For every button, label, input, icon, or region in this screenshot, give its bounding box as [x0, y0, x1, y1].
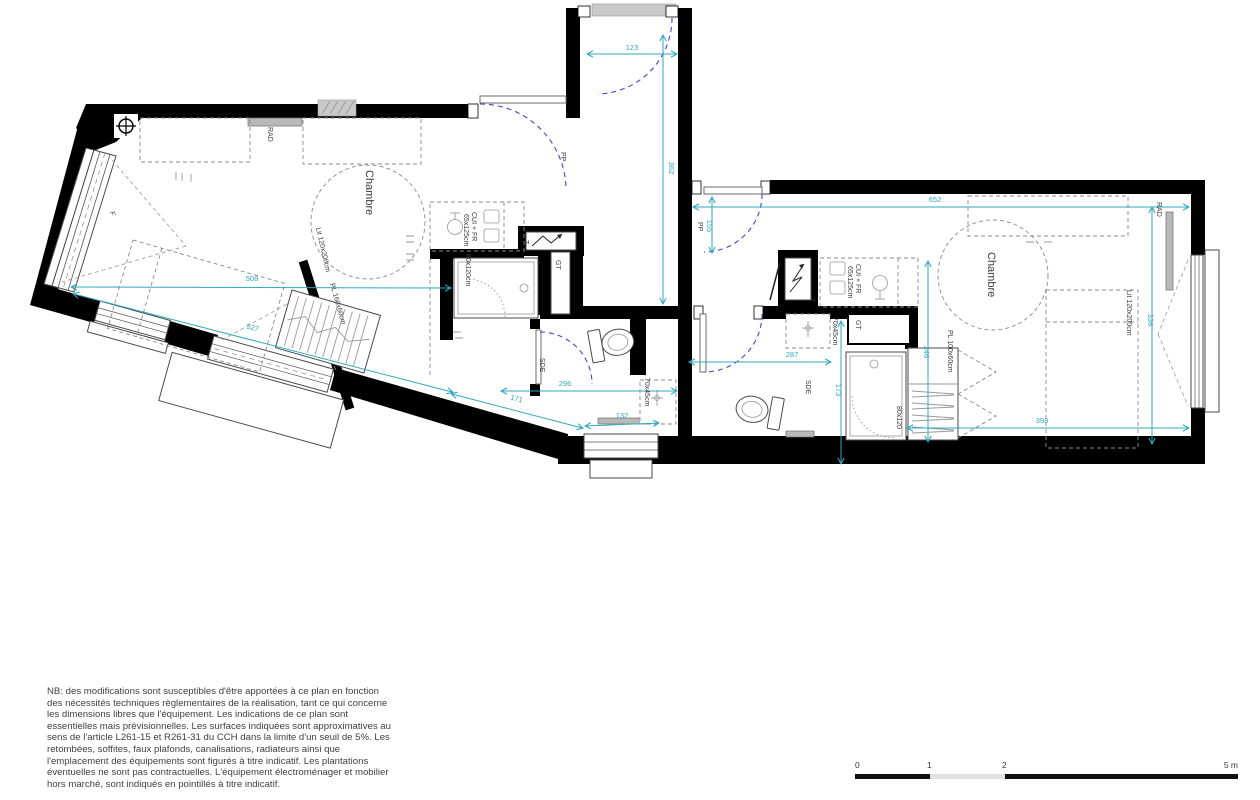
closet-label-right: PL 100x60cm	[946, 330, 953, 373]
landing-threshold	[592, 4, 676, 16]
note-line: éventuelles ne sont pas contractuelles. …	[47, 767, 392, 779]
floor-plan-page: 123 362 508 527 171 132 296 652 155 287 …	[0, 0, 1260, 800]
electrical-panel-right	[770, 258, 811, 300]
dim-bed-wall-right: 398	[1036, 416, 1049, 425]
desk-left-1	[140, 118, 250, 162]
dim-closet-side-right: 246	[922, 346, 931, 359]
dim-sde-depth-right: 173	[834, 384, 843, 397]
grab-bar-right	[786, 431, 814, 437]
dim-entry-width-left: 123	[626, 43, 639, 52]
basin-label-left: 70x45cm	[643, 378, 650, 407]
radiator-label-left: RAD	[266, 127, 273, 142]
radiator-label-right: RAD	[1155, 202, 1162, 217]
scale-bar-segments	[855, 774, 1238, 779]
scale-tick-5m: 5 m	[1224, 760, 1238, 770]
dim-room-depth-right: 336	[1146, 314, 1155, 327]
right-sde-door-arc	[704, 314, 762, 372]
note-line: sens de l'article L261-15 et R261-31 du …	[47, 732, 392, 744]
dim-room-width-left: 508	[246, 274, 259, 283]
note-line: retombées, soffites, faux plafonds, cana…	[47, 744, 392, 756]
dim-mid-wall-left: 171	[509, 393, 523, 405]
room-label-left: Chambre	[363, 170, 375, 215]
scale-bar-ticks: 0 1 2 5 m	[855, 760, 1238, 772]
note-line: essentielles mais prévisionnelles. Les s…	[47, 721, 392, 733]
disclaimer-note: NB: des modifications sont susceptibles …	[47, 686, 392, 790]
bed-label-left: Lit 120x200cm	[314, 227, 331, 273]
radiator-right	[1166, 212, 1173, 290]
dim-entry-depth-left: 362	[667, 162, 676, 175]
scale-tick-0: 0	[855, 760, 860, 770]
dim-lower-wall-left: 527	[245, 322, 259, 334]
dim-sde-width-left: 296	[559, 379, 572, 388]
bed-label-right: Lit 120x200cm	[1125, 290, 1132, 336]
panel-label-right: T	[808, 298, 815, 303]
dim-sde-width-right: 287	[786, 350, 799, 359]
shower-label-right: 80x120	[895, 406, 902, 429]
radiator-left	[248, 118, 302, 126]
kitchen-size-label-left: 65x125cm	[462, 214, 469, 246]
shower-label-left: 80x120cm	[464, 254, 471, 286]
window-west	[44, 148, 186, 292]
duct-label-left: GT	[554, 260, 561, 270]
left-sde-door-leaf	[536, 330, 541, 384]
dim-room-width-right: 652	[929, 195, 942, 204]
window-bottom-centre	[584, 434, 658, 478]
scale-tick-2: 2	[1002, 760, 1007, 770]
note-line: NB: des modifications sont susceptibles …	[47, 686, 392, 698]
landing-door-arc	[598, 18, 672, 94]
room-label-right: Chambre	[985, 252, 997, 297]
scale-tick-1: 1	[927, 760, 932, 770]
toilet-left	[587, 324, 636, 363]
hatched-wall-patch	[318, 100, 356, 116]
scale-bar: 0 1 2 5 m	[855, 760, 1238, 786]
basin-label-right: 70x45cm	[831, 317, 838, 346]
survey-marker-icon	[114, 114, 138, 138]
left-sde-door-arc	[540, 332, 592, 384]
basin-right	[786, 314, 830, 348]
electrical-panel-left	[526, 232, 576, 250]
note-line: hors marché, sont indiqués en pointillés…	[47, 779, 392, 791]
note-line: les dimensions libres que l'équipement. …	[47, 709, 392, 721]
kitchen-label-left: CUI + FR	[470, 212, 477, 241]
window-mark-left: F	[108, 211, 116, 217]
kitchen-right	[820, 258, 918, 307]
desk-left-2	[303, 118, 421, 164]
dim-door-width-right: 155	[705, 220, 714, 233]
entry-door-label-right: PP	[696, 222, 703, 232]
scale-segment-dark	[855, 774, 930, 779]
bathroom-label-left: SDE	[538, 358, 545, 373]
desk-right	[968, 196, 1128, 236]
panel-label-left: T	[522, 240, 529, 245]
dim-window-width-left: 132	[616, 411, 629, 420]
entry-door-label-left: PP	[559, 152, 566, 162]
toilet-right	[734, 391, 785, 431]
scale-segment-dark	[1005, 774, 1238, 779]
floor-plan-drawing: 123 362 508 527 171 132 296 652 155 287 …	[0, 0, 1260, 680]
bathroom-label-right: SDE	[804, 380, 811, 395]
right-entry-door-leaf	[704, 187, 762, 194]
note-line: l'emplacement des équipements sont figur…	[47, 756, 392, 768]
kitchen-size-label-right: 65x125cm	[846, 266, 853, 298]
left-entry-door-leaf	[480, 96, 566, 103]
kitchen-label-right: CUI + FR	[854, 264, 861, 293]
scale-segment-light	[930, 774, 1005, 779]
right-sde-door-leaf	[700, 314, 706, 372]
left-entry-door-arc	[480, 104, 566, 190]
window-sw-small	[87, 300, 174, 353]
bed-right	[1046, 290, 1138, 448]
duct-label-right: GT	[854, 320, 861, 330]
note-line: des nécessités techniques règlementaires…	[47, 698, 392, 710]
